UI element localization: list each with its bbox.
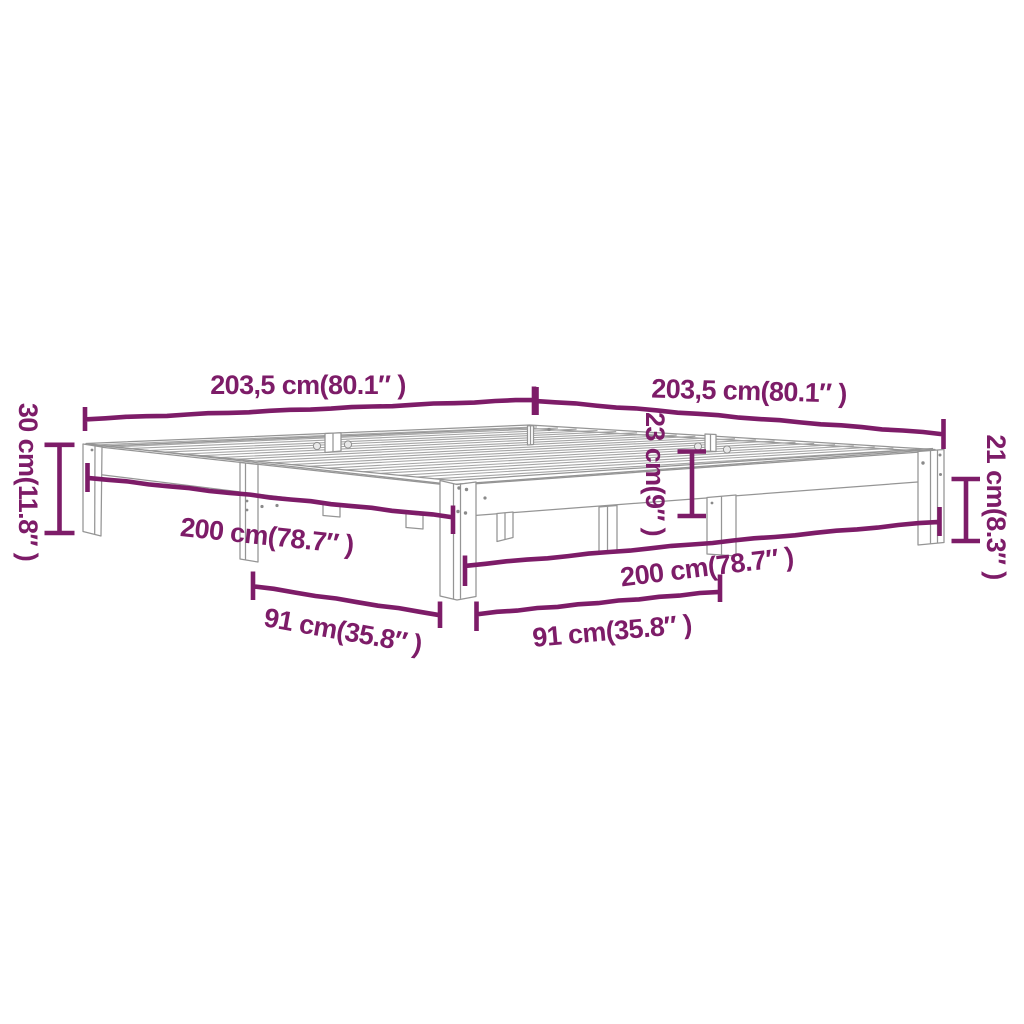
svg-text:203,5 cm(80.1″ ): 203,5 cm(80.1″ ) <box>651 373 847 408</box>
svg-text:30 cm(11.8″ ): 30 cm(11.8″ ) <box>13 403 43 561</box>
svg-text:23 cm(9″ ): 23 cm(9″ ) <box>640 412 670 536</box>
svg-text:203,5 cm(80.1″ ): 203,5 cm(80.1″ ) <box>210 370 405 400</box>
svg-text:21 cm(8.3″ ): 21 cm(8.3″ ) <box>981 434 1011 579</box>
